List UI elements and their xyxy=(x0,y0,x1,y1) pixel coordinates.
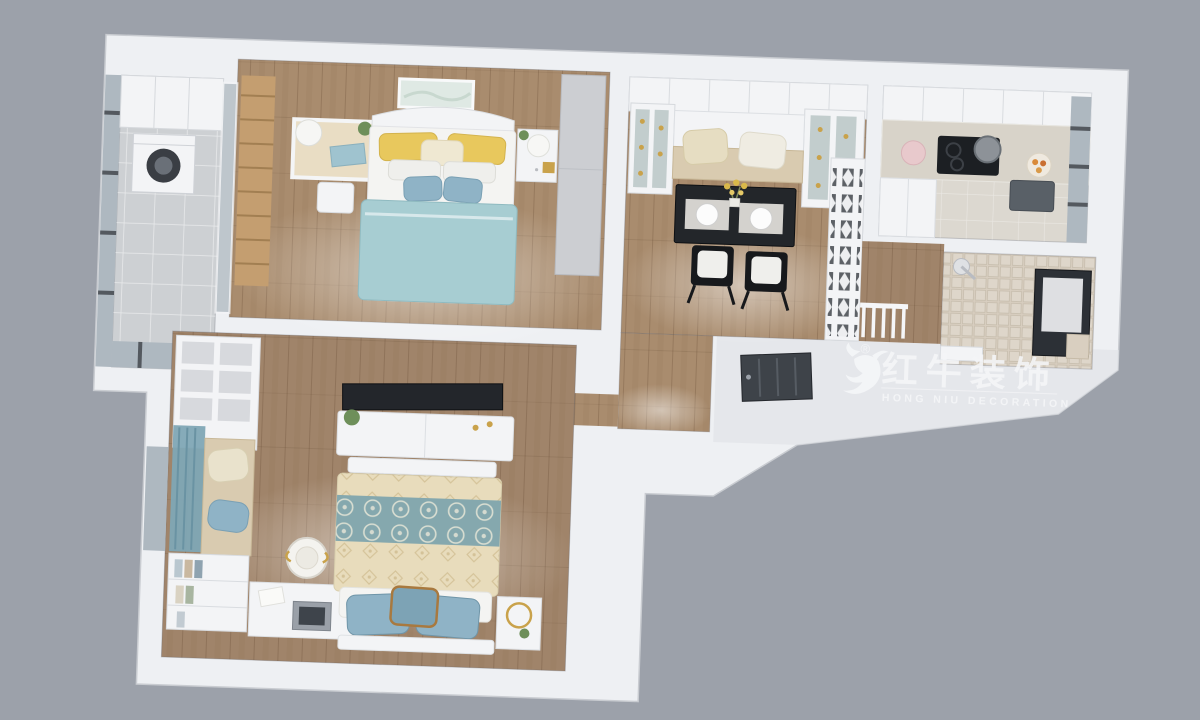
desk-chair xyxy=(317,182,354,213)
bedroom2-window xyxy=(143,446,169,551)
desk-lamp xyxy=(295,119,322,146)
master-bedroom xyxy=(214,59,620,361)
fruit-plate xyxy=(1027,153,1052,178)
seat-pillow-blue xyxy=(206,498,250,533)
plate-left xyxy=(696,203,719,226)
tv xyxy=(343,384,503,410)
vanity-mirror xyxy=(1041,277,1083,332)
floorplan-render: ® 红牛装饰 HONG NIU DECORATION xyxy=(0,0,1200,720)
window-seat xyxy=(201,438,255,556)
nightstand xyxy=(516,129,558,182)
master-bed xyxy=(358,105,521,305)
bookshelf xyxy=(166,553,249,632)
dining-room xyxy=(621,77,870,349)
bench-pillow-cream xyxy=(682,128,728,165)
papers xyxy=(258,587,284,607)
plate-right xyxy=(750,207,773,230)
cooking-pot xyxy=(974,136,1001,163)
tv-cabinet xyxy=(337,409,514,461)
second-bed xyxy=(332,457,503,655)
washing-machine xyxy=(132,134,196,194)
entry-door xyxy=(741,353,813,401)
nightstand2 xyxy=(496,597,542,651)
dining-table xyxy=(674,177,796,246)
cushion-trimmed xyxy=(390,586,439,627)
banquette-bench xyxy=(672,110,804,182)
bath-stool xyxy=(1066,334,1089,359)
display-shelf xyxy=(825,158,865,341)
rice-cooker xyxy=(901,140,926,165)
cooktop xyxy=(937,135,1001,176)
pillow-blue-left xyxy=(403,176,442,201)
stool-jar xyxy=(286,537,329,578)
master-wardrobe xyxy=(555,74,606,275)
seat-pillow-cream xyxy=(207,447,250,483)
curtains xyxy=(169,425,205,552)
kitchen xyxy=(879,86,1092,243)
nightstand-lamp xyxy=(527,134,550,157)
registered-mark: ® xyxy=(860,341,871,356)
entry xyxy=(739,350,814,403)
desk-book xyxy=(330,143,366,166)
balcony xyxy=(95,75,223,371)
pillow-blue-right xyxy=(443,176,483,204)
photo-frame xyxy=(542,162,554,173)
second-bedroom xyxy=(139,330,580,671)
bench-pillow-white xyxy=(738,131,787,170)
balcony-cabinet xyxy=(120,75,224,131)
floorplan-svg: ® 红牛装饰 HONG NIU DECORATION xyxy=(0,0,1200,720)
kitchen-sink xyxy=(1009,180,1054,212)
glass-cabinet-left xyxy=(628,103,675,194)
